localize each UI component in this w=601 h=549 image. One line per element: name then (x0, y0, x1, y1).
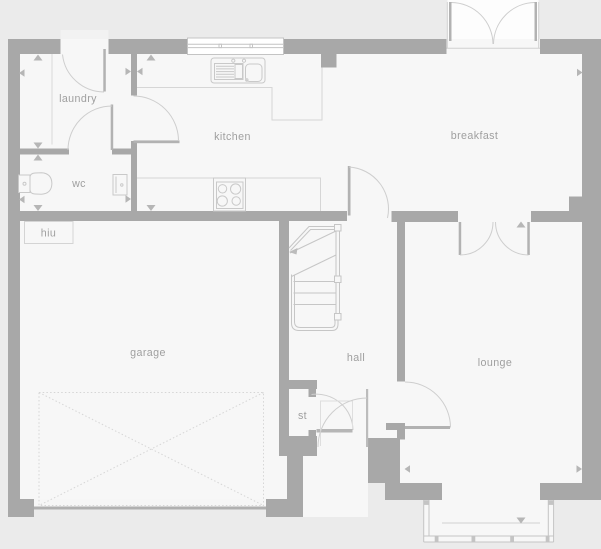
svg-text:wc: wc (71, 178, 86, 190)
svg-text:hiu: hiu (41, 228, 56, 240)
svg-text:hall: hall (347, 352, 365, 364)
svg-text:kitchen: kitchen (214, 131, 251, 143)
svg-text:garage: garage (130, 347, 166, 359)
svg-text:breakfast: breakfast (451, 130, 499, 142)
svg-text:lounge: lounge (478, 357, 513, 369)
svg-text:st: st (298, 410, 307, 422)
svg-text:laundry: laundry (59, 93, 97, 105)
